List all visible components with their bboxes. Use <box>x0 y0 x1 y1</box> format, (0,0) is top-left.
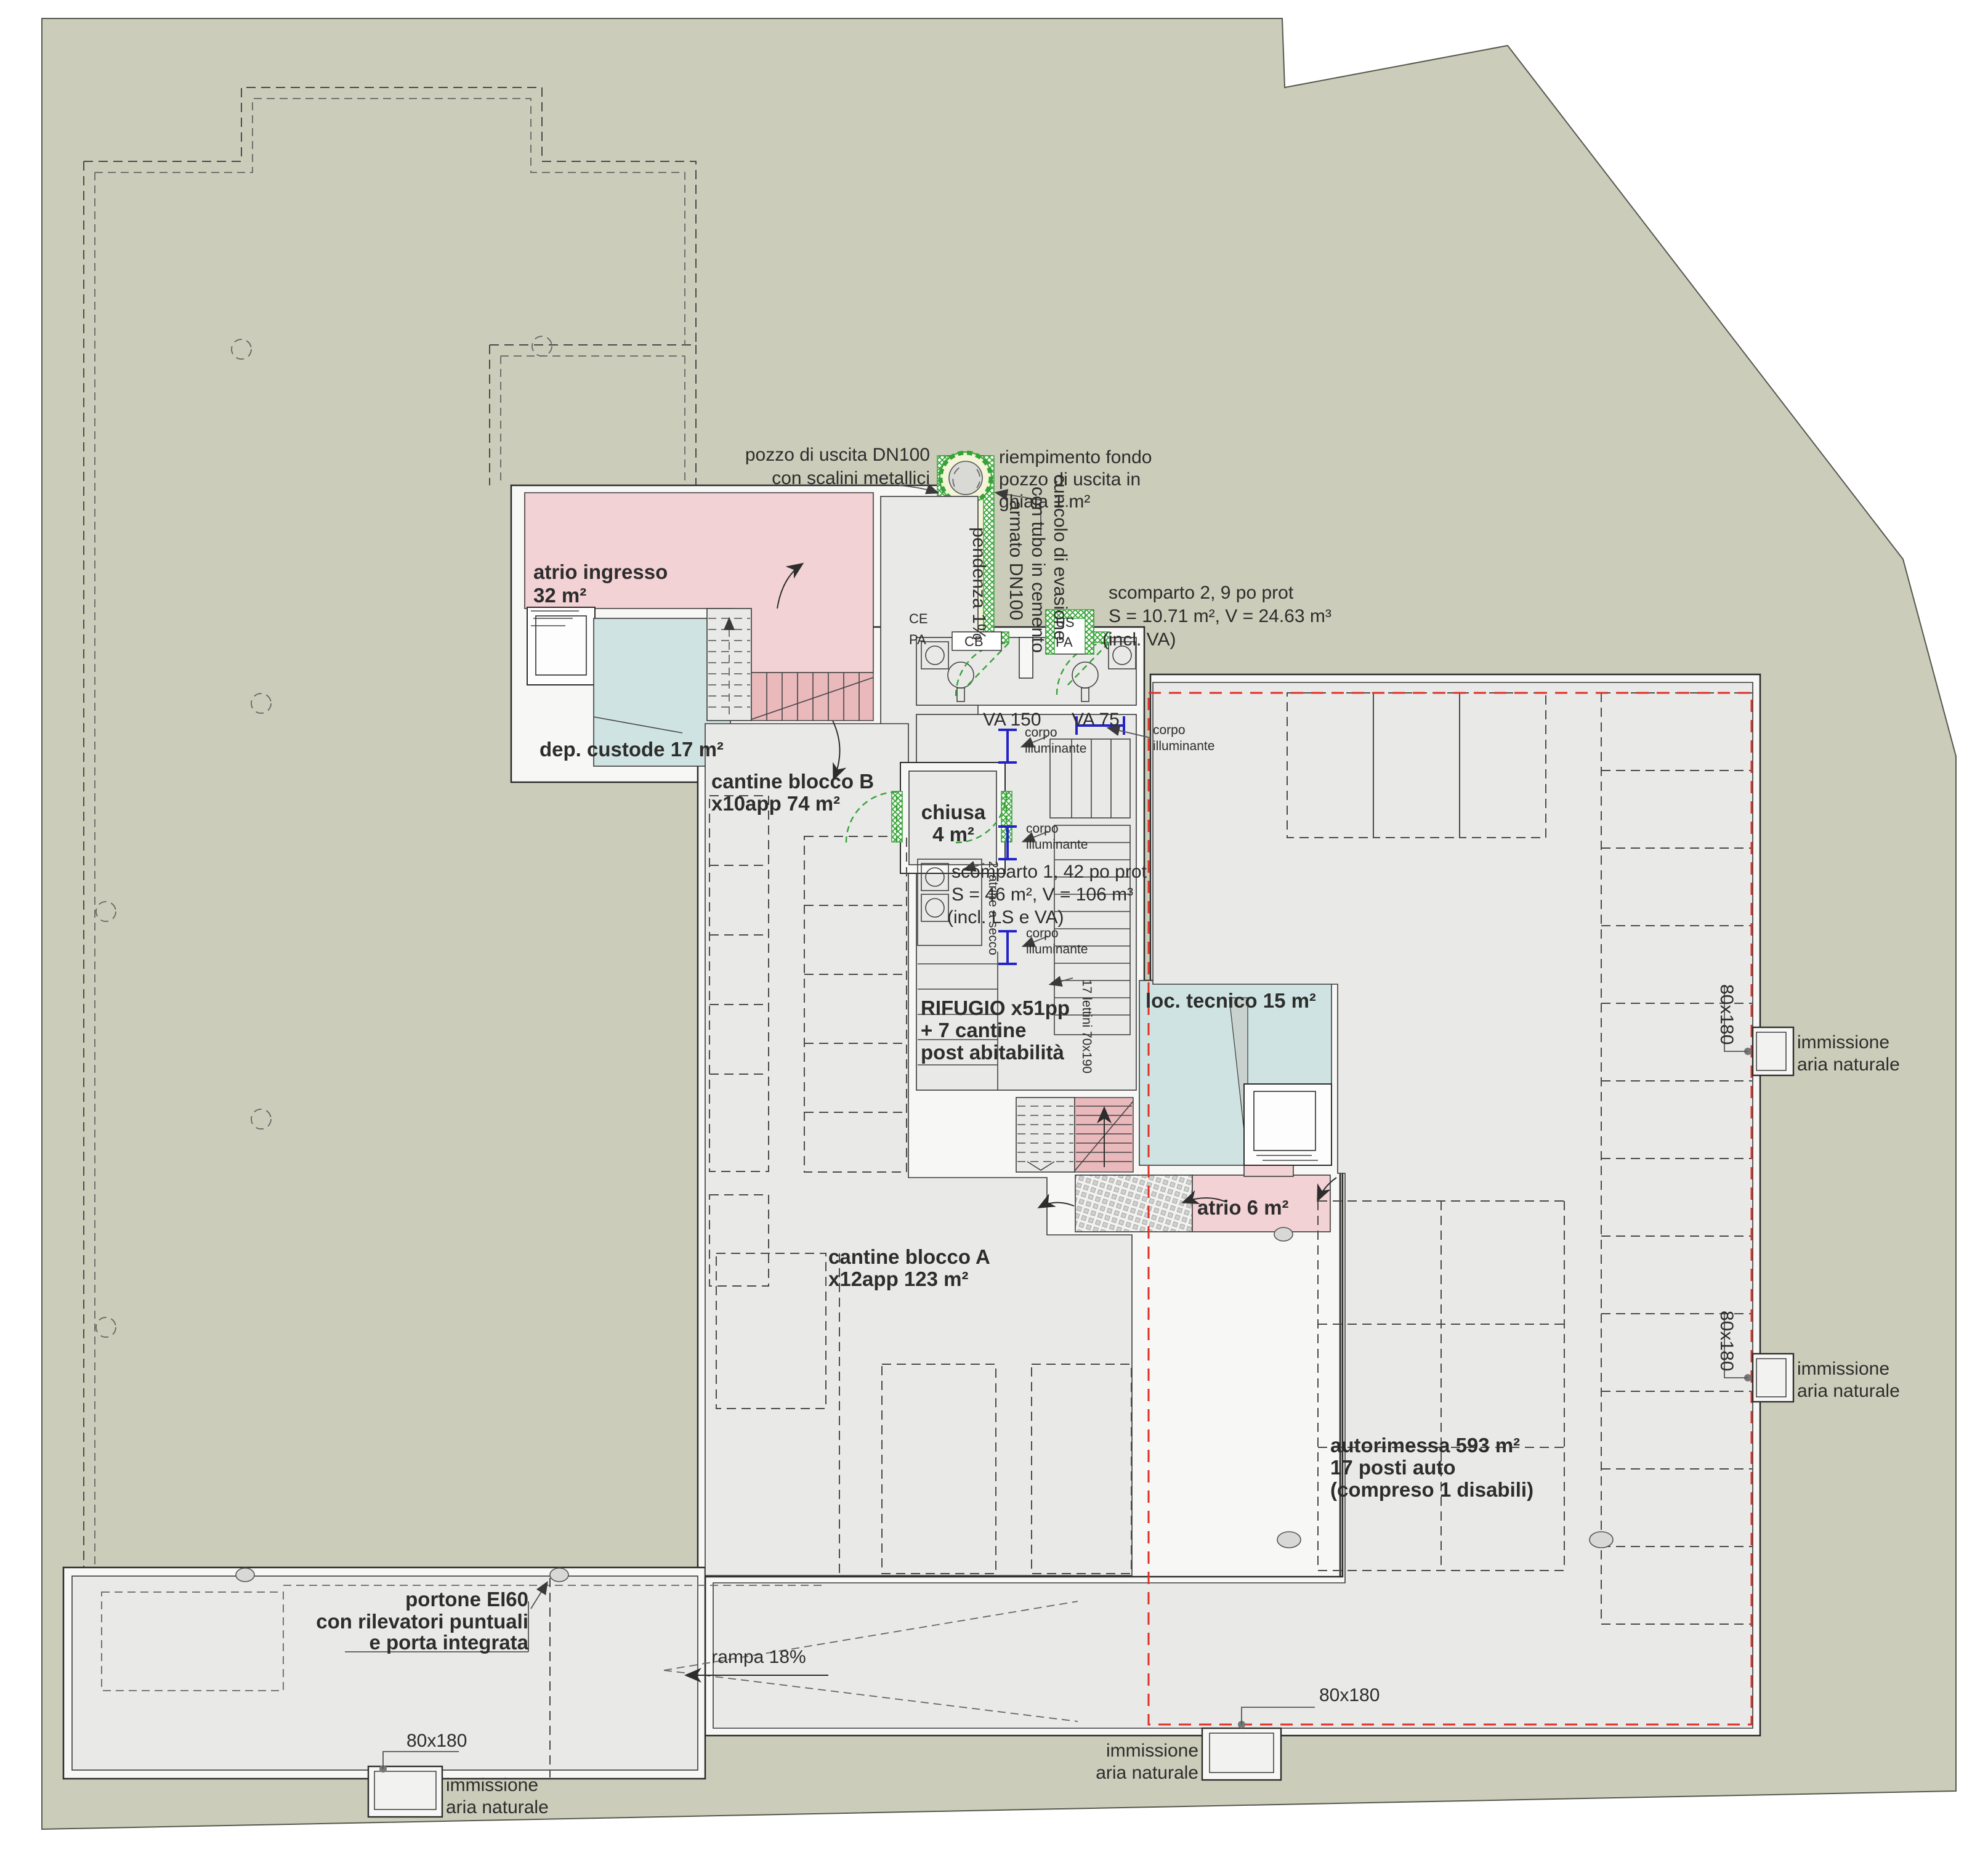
label-atrio-ingresso-2: 32 m² <box>533 584 586 607</box>
label-vent4-b: aria naturale <box>446 1797 549 1818</box>
label-corpo-3a: corpo <box>1026 822 1059 836</box>
elevator-2 <box>1244 1084 1331 1165</box>
label-cunicolo-3: armato DN100 <box>1006 500 1026 620</box>
label-corpo-3b: illuminante <box>1026 838 1088 852</box>
label-scomparto2-2: S = 10.71 m², V = 24.63 m³ <box>1109 606 1331 626</box>
label-corpo-2a: corpo <box>1153 723 1186 737</box>
label-rifugio-3: post abitabilità <box>921 1041 1065 1064</box>
label-pozzo-1: pozzo di uscita DN100 <box>745 445 930 465</box>
stair-upper-pink <box>751 673 873 721</box>
label-rampa: rampa 18% <box>711 1647 806 1667</box>
label-autorimessa-2: 17 posti auto <box>1330 1456 1456 1479</box>
label-dep-custode: dep. custode 17 m² <box>539 738 724 761</box>
label-pa-2: PA <box>1056 634 1073 650</box>
label-lettini: 17 lettini 70x190 <box>1080 979 1094 1074</box>
ramp-floor <box>72 1576 698 1770</box>
label-corpo-2b: illuminante <box>1153 739 1214 753</box>
label-va75: VA 75 <box>1072 710 1120 730</box>
label-cantine-a-1: cantine blocco A <box>828 1245 990 1268</box>
label-portone-1: portone EI60 <box>405 1588 528 1611</box>
label-chiusa-2: 4 m² <box>932 823 974 846</box>
label-vent3-a: immissione <box>1106 1741 1198 1761</box>
label-pozzo-2: con scalini metallici <box>772 468 930 488</box>
label-cantine-b-2: x10app 74 m² <box>711 792 840 815</box>
label-vent4-size: 80x180 <box>406 1731 467 1751</box>
label-rifugio-1: RIFUGIO x51pp <box>921 997 1070 1019</box>
label-us: US <box>1056 615 1075 630</box>
elevator-1 <box>527 607 595 685</box>
label-pa-1: PA <box>909 632 926 647</box>
label-latrine: 2 latrine a secco <box>986 861 1000 955</box>
label-portone-3: e porta integrata <box>369 1631 528 1654</box>
label-scomparto2-3: (incl. VA) <box>1102 629 1176 650</box>
label-chiusa-1: chiusa <box>921 801 986 823</box>
stair-upper <box>707 609 751 721</box>
floor-plan-page: pozzo di uscita DN100 con scalini metall… <box>0 0 1988 1860</box>
hatch-zone <box>1075 1175 1192 1232</box>
label-atrio-6: atrio 6 m² <box>1197 1196 1289 1219</box>
stair-lower <box>1016 1098 1133 1172</box>
label-cantine-b-1: cantine blocco B <box>711 770 874 793</box>
label-corpo-1a: corpo <box>1025 726 1057 740</box>
label-loc-tecnico: loc. tecnico 15 m² <box>1146 989 1316 1012</box>
label-pendenza: pendenza 1% <box>969 527 989 641</box>
label-vent4-a: immissione <box>446 1775 538 1795</box>
label-corpo-4a: corpo <box>1026 926 1059 940</box>
label-scomparto1-2: S = 46 m², V = 106 m³ <box>952 884 1133 905</box>
label-cb: CB <box>964 634 984 649</box>
label-corpo-4b: illuminante <box>1026 942 1088 956</box>
label-portone-2: con rilevatori puntuali <box>316 1610 528 1633</box>
label-scomparto1-3: (incl. LS e VA) <box>947 907 1064 928</box>
label-scomparto1-1: scomparto 1, 42 po prot <box>952 862 1147 882</box>
label-vent2-a: immissione <box>1797 1359 1889 1379</box>
label-autorimessa-3: (compreso 1 disabili) <box>1330 1478 1533 1501</box>
label-autorimessa-1: autorimessa 593 m² <box>1330 1434 1520 1457</box>
label-vent3-b: aria naturale <box>1096 1763 1198 1783</box>
label-atrio-ingresso-1: atrio ingresso <box>533 560 668 583</box>
label-cantine-a-2: x12app 123 m² <box>828 1268 968 1290</box>
label-riempimento-1: riempimento fondo <box>999 447 1152 467</box>
label-cunicolo-2: con tubo in cemento <box>1028 487 1048 653</box>
label-scomparto2-1: scomparto 2, 9 po prot <box>1109 583 1294 603</box>
label-vent3-size: 80x180 <box>1319 1685 1380 1705</box>
label-vent2-size: 80x180 <box>1716 1311 1737 1371</box>
label-corpo-1b: illuminante <box>1025 742 1086 756</box>
label-rifugio-2: + 7 cantine <box>921 1019 1027 1041</box>
label-vent2-b: aria naturale <box>1797 1381 1900 1401</box>
floor-plan-drawing: pozzo di uscita DN100 con scalini metall… <box>0 0 1988 1860</box>
label-ce: CE <box>909 611 928 626</box>
label-vent1-size: 80x180 <box>1716 984 1737 1045</box>
label-vent1-a: immissione <box>1797 1032 1889 1053</box>
label-vent1-b: aria naturale <box>1797 1054 1900 1075</box>
